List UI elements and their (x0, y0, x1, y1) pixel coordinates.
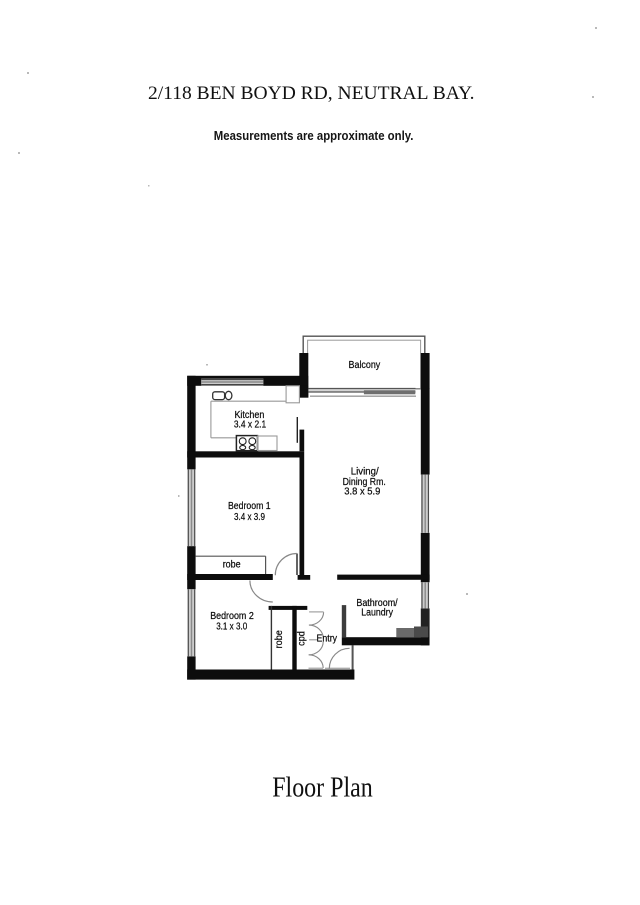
svg-text:3.4 x 3.9: 3.4 x 3.9 (234, 512, 265, 523)
svg-text:3.8 x 5.9: 3.8 x 5.9 (344, 486, 381, 497)
svg-text:Floor Plan: Floor Plan (272, 772, 373, 804)
svg-text:cpd: cpd (296, 631, 307, 646)
svg-text:robe: robe (274, 630, 285, 648)
svg-text:Balcony: Balcony (349, 360, 381, 371)
svg-text:Measurements are approximate o: Measurements are approximate only. (214, 128, 414, 143)
svg-text:2/118 BEN BOYD RD, NEUTRAL BAY: 2/118 BEN BOYD RD, NEUTRAL BAY. (148, 83, 475, 104)
svg-text:Entry: Entry (317, 634, 338, 645)
svg-text:3.1 x 3.0: 3.1 x 3.0 (216, 621, 247, 632)
svg-text:3.4 x 2.1: 3.4 x 2.1 (234, 420, 267, 431)
svg-text:Bedroom 1: Bedroom 1 (228, 501, 271, 512)
svg-text:robe: robe (223, 560, 241, 571)
svg-text:Laundry: Laundry (361, 608, 393, 619)
